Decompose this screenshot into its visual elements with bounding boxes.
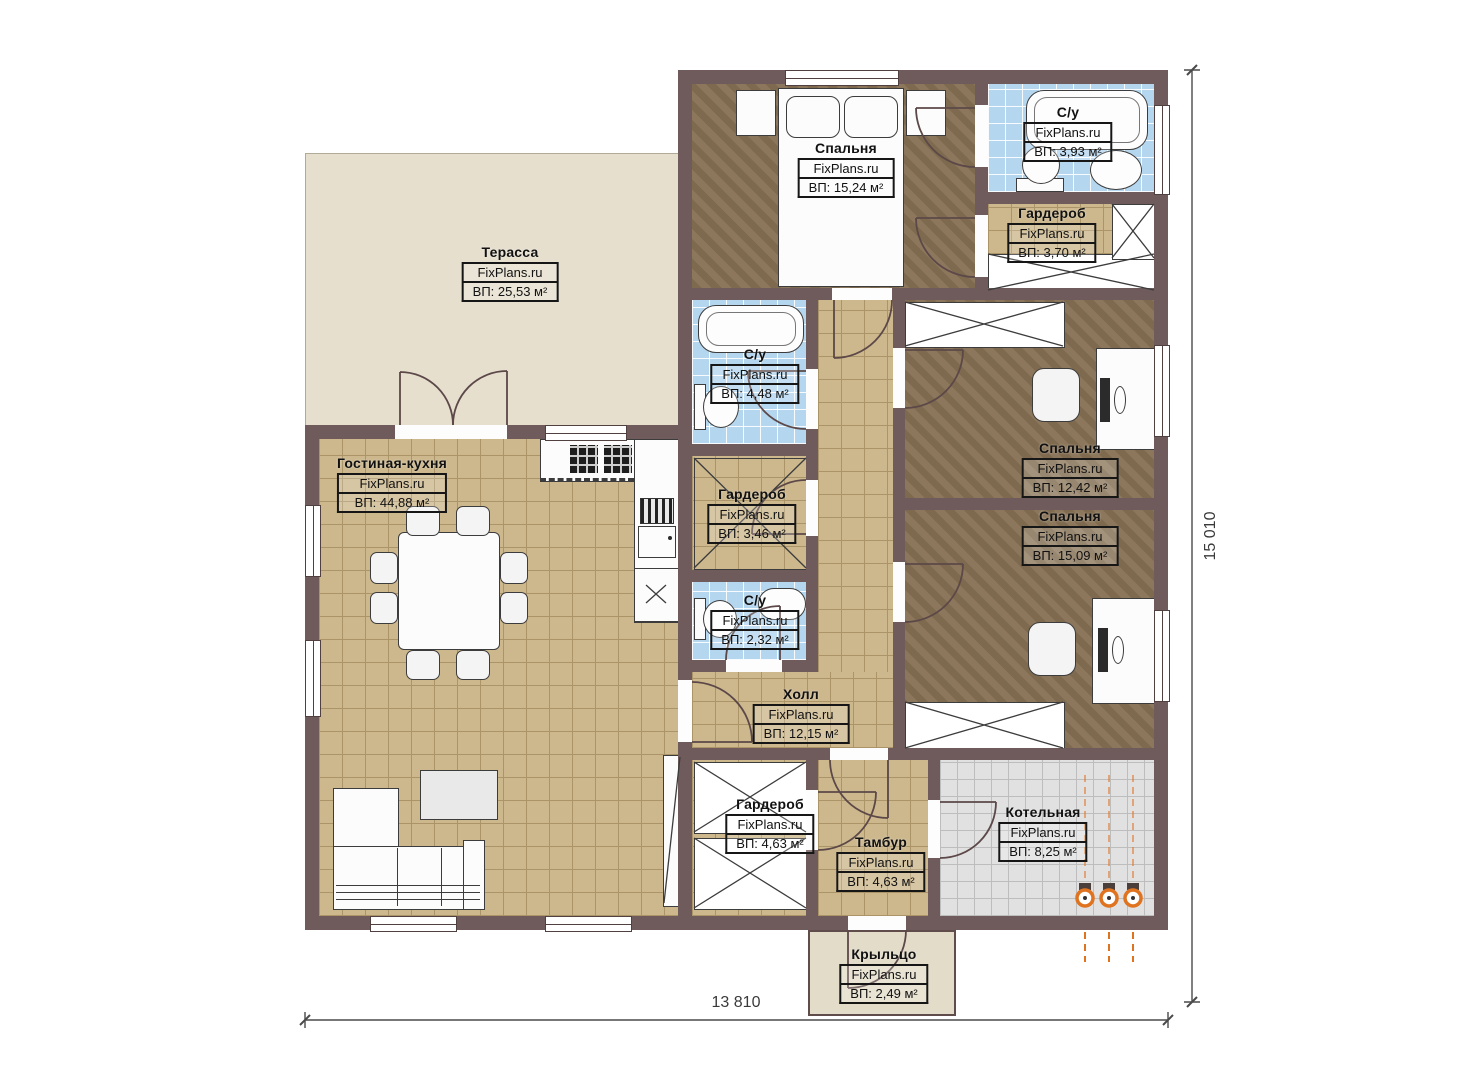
room-name: Гардероб — [707, 486, 796, 502]
room-area: ВП: 3,93 м² — [1023, 143, 1112, 162]
room-area: ВП: 15,24 м² — [798, 179, 895, 198]
room-label-wardrobe-bottom: Гардероб FixPlans.ru ВП: 4,63 м² — [725, 796, 814, 854]
appliance — [634, 568, 680, 622]
room-area: ВП: 2,49 м² — [839, 985, 928, 1004]
wall — [692, 748, 1154, 760]
door-opening — [893, 562, 905, 622]
room-label-wardrobe-top: Гардероб FixPlans.ru ВП: 3,70 м² — [1007, 205, 1096, 263]
upper-cabinets-dashed — [540, 478, 634, 481]
room-area: ВП: 4,48 м² — [710, 385, 799, 404]
stove-burners — [604, 445, 632, 473]
room-name: Гостиная-кухня — [337, 455, 447, 471]
door-opening — [395, 425, 507, 439]
room-name: С/у — [710, 592, 799, 608]
room-area: ВП: 15,09 м² — [1022, 547, 1119, 566]
room-label-bathroom-small: С/у FixPlans.ru ВП: 2,32 м² — [710, 592, 799, 650]
window — [785, 70, 899, 86]
sofa-cushion-divider — [441, 848, 442, 906]
door-opening — [678, 680, 692, 742]
wall — [692, 570, 806, 582]
room-area: ВП: 25,53 м² — [462, 283, 559, 302]
door-opening — [806, 369, 818, 429]
room-label-boiler-room: Котельная FixPlans.ru ВП: 8,25 м² — [998, 804, 1087, 862]
office-chair — [1032, 368, 1080, 422]
room-area: ВП: 3,70 м² — [1007, 244, 1096, 263]
room-name: Спальня — [1022, 440, 1119, 456]
kitchen-sink — [638, 526, 676, 558]
wall — [692, 444, 806, 456]
faucet — [668, 536, 672, 540]
room-area: ВП: 4,63 м² — [725, 835, 814, 854]
dining-chair — [456, 650, 490, 680]
room-label-wardrobe-mid: Гардероб FixPlans.ru ВП: 3,46 м² — [707, 486, 796, 544]
stove-burners — [570, 445, 598, 473]
door-opening — [832, 288, 892, 300]
wall — [678, 70, 1168, 84]
watermark: FixPlans.ru — [998, 822, 1087, 843]
desk-speaker — [1114, 386, 1126, 414]
room-label-terrace: Терасса FixPlans.ru ВП: 25,53 м² — [462, 244, 559, 302]
pillow — [786, 96, 840, 138]
room-name: С/у — [710, 346, 799, 362]
nightstand — [736, 90, 776, 136]
watermark: FixPlans.ru — [753, 704, 850, 725]
dining-table — [398, 532, 500, 650]
coffee-table — [420, 770, 498, 820]
room-area: ВП: 8,25 м² — [998, 843, 1087, 862]
room-area: ВП: 44,88 м² — [337, 494, 447, 513]
watermark: FixPlans.ru — [836, 852, 925, 873]
room-name: С/у — [1023, 104, 1112, 120]
watermark: FixPlans.ru — [1022, 526, 1119, 547]
window — [545, 916, 632, 932]
room-name: Котельная — [998, 804, 1087, 820]
sofa-stitch-lines — [336, 880, 480, 900]
door-opening — [806, 480, 818, 536]
room-label-vestibule: Тамбур FixPlans.ru ВП: 4,63 м² — [836, 834, 925, 892]
wall — [1154, 70, 1168, 930]
dimension-width: 13 810 — [712, 994, 761, 1012]
door-opening — [830, 748, 888, 760]
wall — [988, 192, 1154, 204]
dish-rack — [640, 498, 674, 524]
pillow — [844, 96, 898, 138]
nightstand — [906, 90, 946, 136]
room-area: ВП: 4,63 м² — [836, 873, 925, 892]
room-name: Тамбур — [836, 834, 925, 850]
room-label-living-kitchen: Гостиная-кухня FixPlans.ru ВП: 44,88 м² — [337, 455, 447, 513]
watermark: FixPlans.ru — [710, 610, 799, 631]
room-area: ВП: 12,42 м² — [1022, 479, 1119, 498]
room-area: ВП: 12,15 м² — [753, 725, 850, 744]
room-name: Терасса — [462, 244, 559, 260]
room-label-bathroom-mid: С/у FixPlans.ru ВП: 4,48 м² — [710, 346, 799, 404]
door-opening — [975, 215, 988, 277]
watermark: FixPlans.ru — [1023, 122, 1112, 143]
watermark: FixPlans.ru — [798, 158, 895, 179]
wall — [678, 70, 692, 439]
bathtub-basin — [706, 312, 796, 346]
room-name: Холл — [753, 686, 850, 702]
room-label-porch: Крыльцо FixPlans.ru ВП: 2,49 м² — [839, 946, 928, 1004]
watermark: FixPlans.ru — [839, 964, 928, 985]
room-label-bedroom-top: Спальня FixPlans.ru ВП: 15,24 м² — [798, 140, 895, 198]
room-name: Спальня — [1022, 508, 1119, 524]
door-opening — [848, 916, 906, 930]
watermark: FixPlans.ru — [710, 364, 799, 385]
closet — [905, 302, 1065, 348]
window — [305, 505, 321, 577]
watermark: FixPlans.ru — [462, 262, 559, 283]
room-name: Спальня — [798, 140, 895, 156]
monitor — [1098, 628, 1108, 672]
room-area: ВП: 2,32 м² — [710, 631, 799, 650]
office-chair — [1028, 622, 1076, 676]
dining-chair — [456, 506, 490, 536]
room-name: Гардероб — [725, 796, 814, 812]
room-label-hall: Холл FixPlans.ru ВП: 12,15 м² — [753, 686, 850, 744]
window — [1154, 105, 1170, 195]
watermark: FixPlans.ru — [1007, 223, 1096, 244]
watermark: FixPlans.ru — [707, 504, 796, 525]
door-opening — [975, 105, 988, 167]
door-opening — [928, 800, 940, 858]
desk-speaker — [1112, 636, 1124, 664]
wall — [692, 288, 1154, 300]
room-area: ВП: 3,46 м² — [707, 525, 796, 544]
room-name: Крыльцо — [839, 946, 928, 962]
sofa-cushion-divider — [397, 848, 398, 906]
window — [1154, 610, 1170, 702]
room-label-bathroom-top: С/у FixPlans.ru ВП: 3,93 м² — [1023, 104, 1112, 162]
closet — [1112, 204, 1156, 260]
monitor — [1100, 378, 1110, 422]
watermark: FixPlans.ru — [337, 473, 447, 494]
dimension-height: 15 010 — [1202, 512, 1220, 561]
window — [1154, 345, 1170, 437]
watermark: FixPlans.ru — [725, 814, 814, 835]
door-opening — [726, 660, 782, 672]
wall — [678, 439, 692, 916]
window — [545, 425, 627, 441]
dining-chair — [370, 552, 398, 584]
dining-chair — [500, 552, 528, 584]
window — [305, 640, 321, 717]
room-label-bedroom-right-1: Спальня FixPlans.ru ВП: 12,42 м² — [1022, 440, 1119, 498]
window — [370, 916, 457, 932]
door-opening — [893, 348, 905, 408]
room-label-bedroom-right-2: Спальня FixPlans.ru ВП: 15,09 м² — [1022, 508, 1119, 566]
dining-chair — [406, 650, 440, 680]
room-name: Гардероб — [1007, 205, 1096, 221]
watermark: FixPlans.ru — [1022, 458, 1119, 479]
dining-chair — [370, 592, 398, 624]
closet — [905, 702, 1065, 750]
floor-plan: Терасса FixPlans.ru ВП: 25,53 м² Спальня… — [0, 0, 1473, 1080]
dining-chair — [500, 592, 528, 624]
